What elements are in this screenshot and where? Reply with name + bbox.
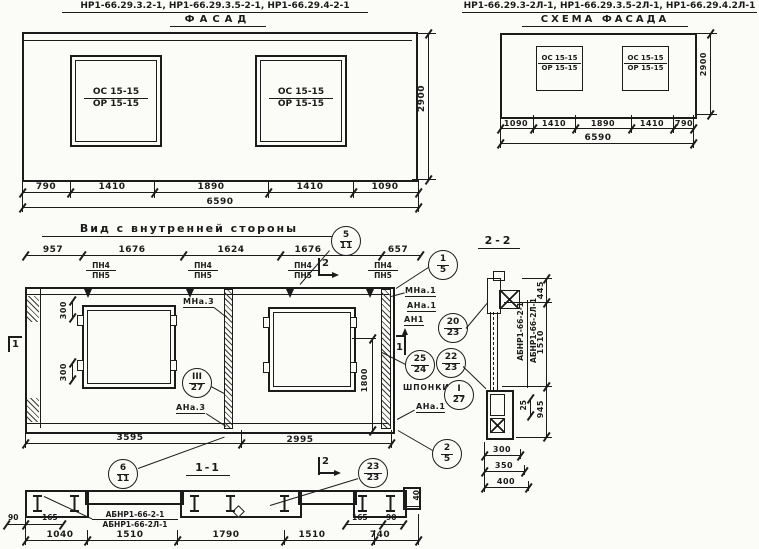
dim-label: 1624: [206, 245, 256, 255]
section-2-2-dim-line: [546, 278, 547, 437]
dim-400: 400: [484, 477, 528, 486]
facade-total-dim-line: [22, 207, 419, 208]
section-1-1-dim-line: [25, 540, 418, 541]
scheme-dim-line: [500, 128, 693, 129]
callout-23-23: 23 23: [358, 458, 388, 488]
dim-label: 2995: [275, 435, 325, 445]
end-strip-hatch: [381, 289, 391, 429]
dim-label: 1040: [38, 530, 82, 540]
dim-label: 3595: [105, 433, 155, 443]
dim-90-right: 90: [386, 513, 396, 522]
scheme-window-1: ОС 15-15 ОР 15-15: [536, 46, 583, 91]
dim-label: 740: [358, 530, 402, 540]
dim-165-right: 165: [352, 513, 368, 522]
pn-mark: ПН4ПН5: [86, 261, 116, 281]
scheme-title: НР1-66.29.3-2Л-1, НР1-66.29.3.5-2Л-1, НР…: [462, 1, 757, 13]
dim-945: 945: [536, 400, 545, 418]
window-mark-top: ОС 15-15: [538, 54, 581, 64]
window-mark-top: ОС 15-15: [624, 54, 667, 64]
callout-25-24: 25 24: [405, 350, 435, 380]
label-mna3: МНа.3: [183, 297, 214, 308]
dim-label: 1676: [283, 245, 333, 255]
dim-label: 790: [26, 182, 66, 192]
dim-1800-label: 1800: [360, 368, 369, 392]
dim-445: 445: [536, 281, 545, 299]
facade-subtitle: ФАСАД: [170, 14, 266, 27]
dim-350: 350: [484, 461, 524, 470]
label-mna1: МНа.1: [405, 286, 436, 297]
callout-5-11: 5 11: [331, 226, 361, 256]
dim-label: 1090: [365, 182, 405, 192]
label-shponki: ШПОНКИ: [403, 383, 450, 392]
section-1-1-label: 1-1: [186, 461, 230, 476]
callout-1-5: 1 5: [428, 250, 458, 280]
facade-dim-line: [22, 192, 419, 193]
dim-height-label: 2900: [417, 85, 427, 112]
window-mark-bottom: ОР 15-15: [538, 64, 581, 73]
dim-300-label: 300: [59, 301, 68, 319]
section-2-2-title: 2-2: [478, 234, 520, 249]
dim-label: 1410: [92, 182, 132, 192]
facade-height-dim-line: [428, 33, 429, 180]
dim-height-label: 2900: [699, 52, 708, 76]
window-mark-bottom: ОР 15-15: [269, 99, 333, 110]
dim-label: 1510: [108, 530, 152, 540]
callout-2-5: 2 5: [432, 439, 462, 469]
callout-22-23: 22 23: [436, 348, 466, 378]
dim-165-left: 165: [42, 513, 58, 522]
pn-mark: ПН4ПН5: [288, 261, 318, 281]
dim-label: 790: [666, 119, 702, 128]
scheme-height-dim-line: [710, 33, 711, 115]
pn-mark: ПН4ПН5: [188, 261, 218, 281]
facade-window-2: ОС 15-15 ОР 15-15: [255, 55, 347, 147]
callout-20-23: 20 23: [438, 313, 468, 343]
dim-label: 1890: [585, 119, 621, 128]
callout-6-11: 6 11: [108, 459, 138, 489]
scheme-window-2: ОС 15-15 ОР 15-15: [622, 46, 669, 91]
inner-1800-dim-line: [372, 338, 373, 431]
end-block-hatch: [27, 398, 39, 422]
label-an1: АН1: [404, 315, 424, 326]
callout-I-27: I 27: [444, 380, 474, 410]
dim-total-label: 6590: [200, 197, 240, 207]
window-mark-bottom: ОР 15-15: [624, 64, 667, 73]
facade-title: НР1-66.29.3.2-1, НР1-66.29.3.5-2-1, НР1-…: [62, 1, 368, 13]
inner-window-2: [268, 307, 356, 392]
dim-1510: 1510: [536, 330, 545, 354]
facade-panel-topline: [24, 40, 412, 41]
dim-label: 1410: [634, 119, 670, 128]
mullion-hatch: [224, 289, 233, 429]
pn-mark: ПН4ПН5: [368, 261, 398, 281]
window-mark-top: ОС 15-15: [84, 87, 148, 99]
facade-window-1: ОС 15-15 ОР 15-15: [70, 55, 162, 147]
dim-total-label: 6590: [578, 133, 618, 143]
dim-300-label: 300: [59, 363, 68, 381]
dim-label: 657: [373, 245, 423, 255]
label-ana1: АНа.1: [407, 301, 436, 312]
section-1-1-marks: АБНР1-66-2-1 АБНР1-66-2Л-1: [92, 510, 178, 530]
dim-label: 1890: [191, 182, 231, 192]
label-ana1-low: АНа.1: [416, 402, 445, 413]
label-ana3: АНа.3: [176, 403, 205, 414]
window-mark-bottom: ОР 15-15: [84, 99, 148, 110]
window-mark-top: ОС 15-15: [269, 87, 333, 99]
callout-III-27: III 27: [182, 368, 212, 398]
dim-label: 1676: [107, 245, 157, 255]
dim-label: 1090: [498, 119, 534, 128]
inner-view-title: Вид с внутренней стороны: [42, 222, 336, 237]
dim-label: 1510: [290, 530, 334, 540]
dim-300: 300: [484, 445, 520, 454]
dim-25: 25: [519, 400, 528, 410]
inner-top-dim-line: [25, 255, 420, 256]
engineering-drawing-sheet: НР1-66.29.3.2-1, НР1-66.29.3.5-2-1, НР1-…: [0, 0, 759, 549]
scheme-total-dim-line: [500, 143, 693, 144]
dim-40: 40: [412, 490, 421, 500]
section-2-2-mark-a: АБНР1-66-2-1: [516, 302, 525, 361]
end-block-hatch: [27, 296, 39, 322]
dim-label: 1790: [204, 530, 248, 540]
scheme-subtitle: СХЕМА ФАСАДА: [522, 14, 688, 27]
dim-label: 1410: [290, 182, 330, 192]
inner-window-1: [82, 305, 176, 389]
dim-label: 1410: [536, 119, 572, 128]
dim-label: 957: [28, 245, 78, 255]
